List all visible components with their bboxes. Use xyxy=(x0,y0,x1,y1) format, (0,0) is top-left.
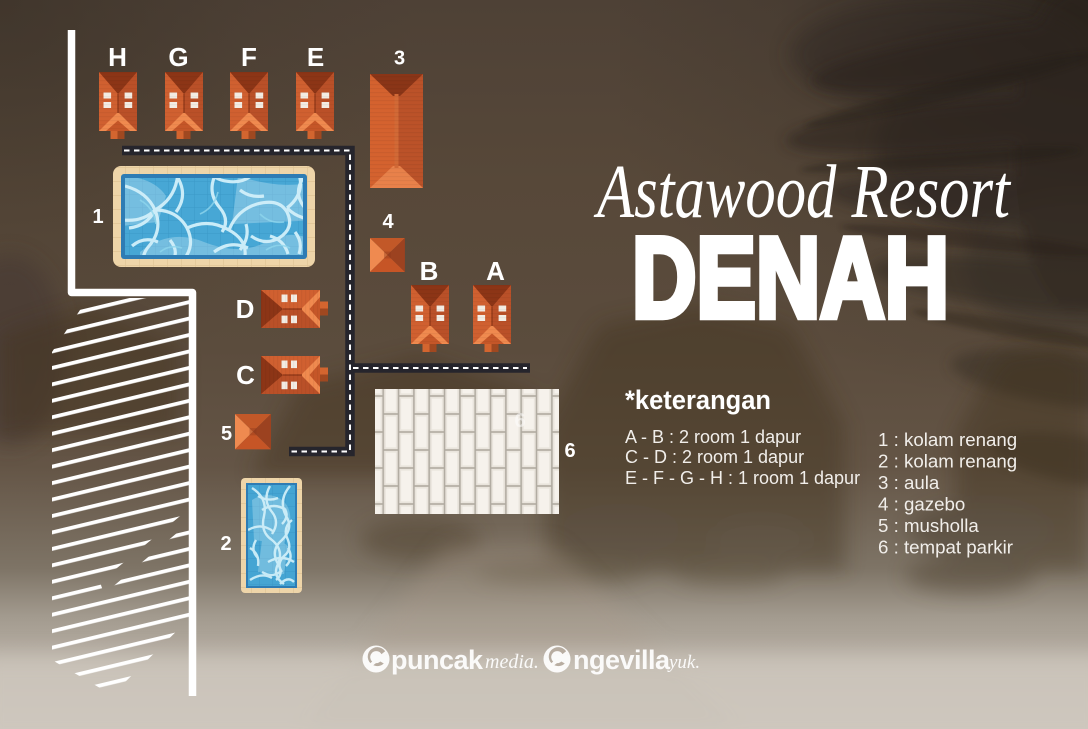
svg-text:5: 5 xyxy=(221,423,232,445)
svg-text:F: F xyxy=(241,42,257,72)
svg-text:G: G xyxy=(168,42,188,72)
svg-text:B: B xyxy=(420,256,439,286)
svg-text:puncak: puncak xyxy=(391,645,484,675)
svg-text:C - D : 2 room 1 dapur: C - D : 2 room 1 dapur xyxy=(625,447,804,467)
svg-text:4 : gazebo: 4 : gazebo xyxy=(878,494,965,515)
svg-text:DENAH: DENAH xyxy=(632,215,949,342)
svg-text:2 : kolam renang: 2 : kolam renang xyxy=(878,451,1017,472)
svg-text:C: C xyxy=(236,360,255,390)
svg-text:E: E xyxy=(307,42,324,72)
svg-text:2: 2 xyxy=(220,533,231,555)
svg-text:6: 6 xyxy=(514,410,525,432)
svg-text:D: D xyxy=(236,294,255,324)
svg-text:media.: media. xyxy=(485,651,539,673)
svg-text:1 : kolam renang: 1 : kolam renang xyxy=(878,429,1017,450)
svg-text:3: 3 xyxy=(394,48,405,70)
svg-text:E - F - G - H : 1 room 1 dapur: E - F - G - H : 1 room 1 dapur xyxy=(625,468,860,488)
svg-text:A - B : 2 room 1 dapur: A - B : 2 room 1 dapur xyxy=(625,427,801,447)
svg-text:5 : musholla: 5 : musholla xyxy=(878,515,979,536)
svg-text:6: 6 xyxy=(564,440,575,462)
svg-text:A: A xyxy=(486,256,505,286)
svg-text:3 : aula: 3 : aula xyxy=(878,472,940,493)
svg-text:1: 1 xyxy=(92,206,103,228)
svg-text:H: H xyxy=(108,42,127,72)
svg-text:6 : tempat parkir: 6 : tempat parkir xyxy=(878,537,1013,558)
svg-text:ngevilla: ngevilla xyxy=(573,645,671,675)
svg-text:*keterangan: *keterangan xyxy=(625,385,771,415)
svg-text:yuk.: yuk. xyxy=(667,652,700,673)
svg-text:4: 4 xyxy=(382,211,394,233)
